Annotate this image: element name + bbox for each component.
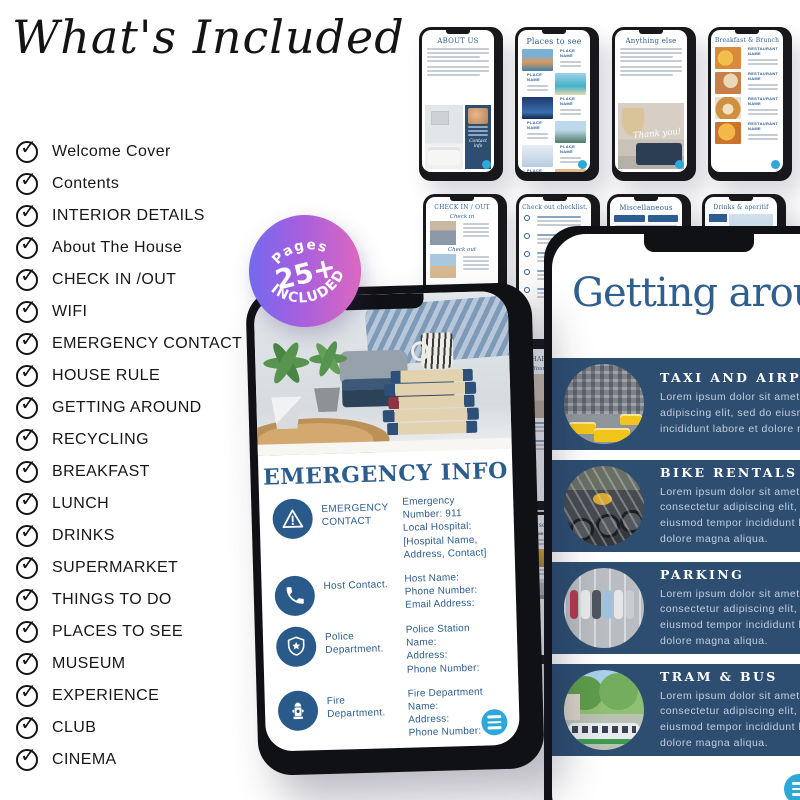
checkout-checklist-title: Check out checklist.	[521, 205, 589, 211]
checklist-item: RECYCLING	[16, 424, 242, 456]
host-contact-row: Host Contact. Host Name: Phone Number: E…	[274, 570, 503, 616]
checkmark-icon	[16, 525, 38, 547]
taxi-section: TAXI AND AIRPORT SHUTTLE Lorem ipsum dol…	[552, 358, 800, 450]
checklist-item: CHECK IN /OUT	[16, 264, 242, 296]
phone-notch	[450, 197, 474, 201]
whats-included-promo: What's Included Welcome Cover Contents I…	[0, 0, 800, 800]
check-out-photo	[430, 254, 456, 278]
checkmark-icon	[16, 205, 38, 227]
checkmark-icon	[16, 685, 38, 707]
checklist-item: BREAKFAST	[16, 456, 242, 488]
transport-sections: TAXI AND AIRPORT SHUTTLE Lorem ipsum dol…	[552, 358, 800, 756]
menu-icon[interactable]	[675, 160, 684, 169]
check-out-script: Check out	[426, 247, 498, 253]
contact-info-label: Contact info	[465, 139, 491, 149]
phone-notch	[543, 197, 567, 201]
check-in-photo	[430, 221, 456, 245]
checkbox-icon	[524, 287, 530, 293]
emergency-contact-row: EMERGENCY CONTACT Emergency Number: 911 …	[272, 493, 502, 565]
checklist-item: LUNCH	[16, 488, 242, 520]
phone-mockup-about-us: ABOUT US Contact info	[419, 27, 503, 181]
tram-photo	[564, 670, 644, 750]
pages-included-badge: Pages 25+ INCLUDED	[246, 212, 364, 330]
phone-icon	[274, 575, 315, 616]
checkmark-icon	[16, 653, 38, 675]
gray-pot	[314, 387, 341, 412]
phone-mockup-getting-around: Getting around TAXI AND AIRPORT SHUTTLE …	[544, 226, 800, 800]
checklist-item: CLUB	[16, 712, 242, 744]
checkbox-icon	[524, 269, 530, 275]
checkmark-icon	[16, 429, 38, 451]
getting-around-title: Getting around	[572, 270, 800, 316]
checklist-item: CINEMA	[16, 744, 242, 776]
places-grid: PLACE NAME PLACE NAME PLACE NAME PLACE N…	[522, 49, 586, 172]
page-title: What's Included	[12, 10, 405, 64]
phone-notch	[639, 30, 663, 34]
phone-mockup-places-to-see: Places to see PLACE NAME PLACE NAME PLAC…	[515, 27, 599, 181]
place-photo	[555, 169, 586, 172]
police-badge-icon	[276, 626, 317, 667]
living-room-photo: Thank you!	[618, 103, 684, 169]
check-in-out-title: CHECK IN / OUT	[428, 205, 496, 211]
checkmark-icon	[16, 141, 38, 163]
checkmark-icon	[16, 557, 38, 579]
checklist-item: HOUSE RULE	[16, 360, 242, 392]
menu-icon[interactable]	[771, 160, 780, 169]
phone-notch	[542, 30, 566, 34]
phone-mockup-emergency-info: EMERGENCY INFO EMERGENCY CONTACT Emergen…	[245, 282, 544, 776]
potted-plant	[309, 353, 350, 388]
checkmark-icon	[16, 461, 38, 483]
about-us-title: ABOUT US	[424, 38, 492, 45]
book-stack	[382, 369, 484, 437]
living-room-photo	[425, 105, 463, 169]
checkmark-icon	[16, 397, 38, 419]
checklist-item: Contents	[16, 168, 242, 200]
phone-notch	[644, 234, 754, 252]
check-in-script: Check in	[426, 214, 498, 220]
phone-notch	[729, 197, 753, 201]
drinks-title: Drinks & aperitif	[707, 205, 775, 211]
phone-notch	[735, 30, 759, 34]
checklist-item: EMERGENCY CONTACT	[16, 328, 242, 360]
parking-photo	[564, 568, 644, 648]
emergency-rows: EMERGENCY CONTACT Emergency Number: 911 …	[259, 484, 520, 744]
checkmark-icon	[16, 333, 38, 355]
menu-icon[interactable]	[482, 160, 491, 169]
checklist-item: SUPERMARKET	[16, 552, 242, 584]
fire-hydrant-icon	[277, 690, 318, 731]
patterned-mug	[421, 332, 454, 369]
checkmark-icon	[16, 301, 38, 323]
checkmark-icon	[16, 493, 38, 515]
checklist-item: Welcome Cover	[16, 136, 242, 168]
checkmark-icon	[16, 269, 38, 291]
checklist-item: DRINKS	[16, 520, 242, 552]
bike-rentals-section: BIKE RENTALS Lorem ipsum dolor sit amet,…	[552, 460, 800, 552]
place-photo	[555, 73, 586, 95]
place-photo	[555, 121, 586, 143]
taxi-photo	[564, 364, 644, 444]
checklist-item: INTERIOR DETAILS	[16, 200, 242, 232]
checkmark-icon	[16, 237, 38, 259]
checkbox-icon	[524, 233, 530, 239]
included-checklist: Welcome Cover Contents INTERIOR DETAILS …	[16, 136, 242, 776]
warning-triangle-icon	[272, 498, 313, 539]
topic-buttons	[614, 215, 678, 222]
phone-mockup-breakfast-brunch: Breakfast & Brunch RESTAURANT NAME RESTA…	[708, 27, 792, 181]
checkmark-icon	[16, 717, 38, 739]
anything-else-title: Anything else	[617, 38, 685, 45]
hosts-photo	[468, 108, 488, 124]
food-photo	[715, 47, 741, 69]
phone-notch	[446, 30, 470, 34]
place-photo	[522, 97, 553, 119]
checkmark-icon	[16, 365, 38, 387]
checklist-item: EXPERIENCE	[16, 680, 242, 712]
checkmark-icon	[16, 621, 38, 643]
parking-section: PARKING Lorem ipsum dolor sit amet, cons…	[552, 562, 800, 654]
bar-label	[709, 214, 727, 222]
food-photo	[715, 72, 741, 94]
checklist-item: MUSEUM	[16, 648, 242, 680]
checklist-item: WIFI	[16, 296, 242, 328]
checkmark-icon	[16, 173, 38, 195]
fire-row: Fire Department. Fire Department Name: A…	[277, 685, 506, 744]
phone-notch	[634, 197, 658, 201]
checklist-item: THINGS TO DO	[16, 584, 242, 616]
checkbox-icon	[524, 215, 530, 221]
potted-plant	[263, 356, 310, 397]
miscellaneous-title: Miscellaneous	[612, 205, 680, 212]
checkmark-icon	[16, 589, 38, 611]
tram-bus-section: TRAM & BUS Lorem ipsum dolor sit amet, c…	[552, 664, 800, 756]
places-title: Places to see	[520, 38, 588, 46]
checklist-item: PLACES TO SEE	[16, 616, 242, 648]
breakfast-title: Breakfast & Brunch	[713, 38, 781, 44]
about-us-images: Contact info	[425, 105, 491, 169]
checklist-item: GETTING AROUND	[16, 392, 242, 424]
checkmark-icon	[16, 749, 38, 771]
bikes-photo	[564, 466, 644, 546]
food-photo	[715, 122, 741, 144]
checkbox-icon	[524, 251, 530, 257]
checklist-item: About The House	[16, 232, 242, 264]
menu-button[interactable]	[784, 774, 800, 800]
place-photo	[522, 49, 553, 71]
food-photo	[715, 97, 741, 119]
menu-icon[interactable]	[578, 160, 587, 169]
phone-mockup-anything-else: Anything else Thank you!	[612, 27, 696, 181]
place-photo	[522, 145, 553, 167]
police-row: Police Department. Police Station Name: …	[276, 621, 505, 680]
